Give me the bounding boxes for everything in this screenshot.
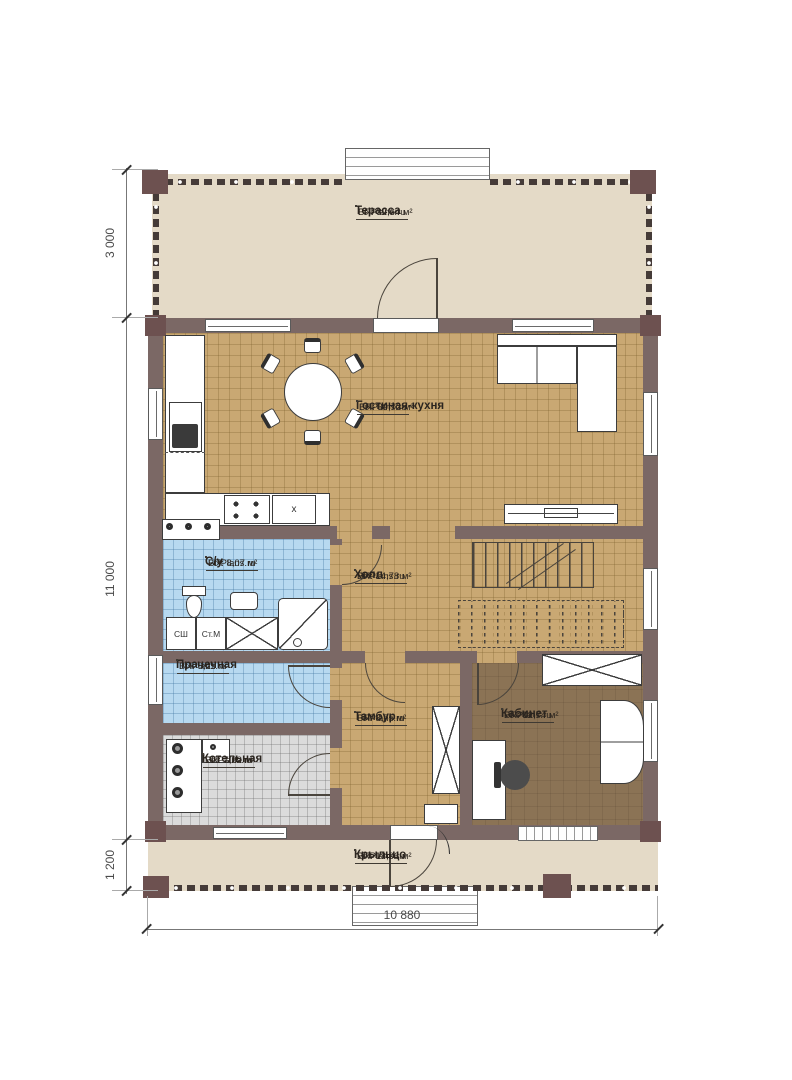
hob-burner-2: [185, 523, 192, 530]
dim-ext: [112, 890, 158, 891]
washing-machine-label: Ст.М: [202, 629, 221, 639]
terrace-post-right: [630, 170, 656, 194]
porch-balustrade: [148, 885, 658, 891]
house-corner-bottom-right: [640, 821, 661, 842]
room-area: ВП: 7,22 м²: [203, 754, 256, 767]
dim-left-bottom: 1 200: [103, 835, 117, 895]
room-area: ВП: 14,78 м²: [355, 570, 414, 583]
wall-v1-a: [330, 539, 342, 545]
wall-v1-c: [330, 700, 342, 748]
boiler-unit-dial: [210, 744, 216, 750]
floor-plan-canvas: x СШ Ст.М Терасса FixPla: [0, 0, 792, 1080]
dim-ext: [112, 839, 158, 840]
wall-v2: [460, 663, 472, 825]
dimension-line-left: [126, 168, 127, 894]
shower-drain: [293, 638, 302, 647]
sofa-back: [497, 334, 617, 346]
stairs-lower-flight: [458, 600, 624, 648]
wall-laundry-boiler: [163, 723, 330, 735]
terrace-balustrade-right: [646, 179, 652, 318]
window-right-living: [643, 392, 658, 456]
hob-burner-1: [166, 523, 173, 530]
wall-hall-south-b: [405, 651, 477, 663]
porch-post-mid: [543, 874, 571, 898]
dining-table: [284, 363, 342, 421]
window-left-kitchen: [148, 388, 163, 440]
room-area: ВП: 6,11 м²: [177, 660, 230, 673]
hob-burner-3: [204, 523, 211, 530]
kitchen-counter-dash: [165, 452, 205, 453]
dim-bottom: 10 880: [367, 908, 437, 922]
cabinet-x-box: [226, 617, 278, 650]
sofa-chaise: [577, 346, 617, 432]
dim-left-middle: 11 000: [103, 549, 117, 609]
kitchen-sink-bowl: [172, 424, 198, 448]
terrace-balustrade-top-left: [152, 179, 345, 185]
dimension-line-bottom: [146, 929, 658, 930]
vestibule-closet: [432, 706, 460, 794]
wall-v1-d: [330, 788, 342, 825]
terrace-steps: [345, 148, 490, 180]
window-top-left: [205, 319, 291, 332]
vestibule-mat: [424, 804, 458, 824]
kitchen-stove: [224, 495, 270, 524]
room-area: ВП: 39,72 м²: [357, 401, 416, 414]
terrace-door-opening: [373, 318, 439, 333]
window-right-hall: [643, 568, 658, 630]
wall-v1-b: [330, 585, 342, 668]
boiler-door-leaf: [288, 794, 330, 796]
stove-mark: x: [292, 504, 297, 515]
room-area: ВП: 13,06 м²: [355, 850, 414, 863]
terrace-door-leaf: [436, 258, 438, 318]
boiler-tank-2: [172, 765, 183, 776]
washing-machine-box: Ст.М: [196, 617, 226, 650]
window-right-office: [643, 700, 658, 762]
office-chair-back: [494, 762, 501, 788]
office-wardrobe: [542, 654, 642, 686]
office-door-leaf: [477, 663, 479, 705]
tv-line: [508, 513, 614, 514]
terrace-balustrade-left: [153, 179, 159, 318]
chair: [304, 338, 321, 353]
dim-ext: [112, 317, 158, 318]
boiler-tank-3: [172, 787, 183, 798]
room-area: ВП: 32,64 м²: [356, 206, 415, 219]
window-top-right: [512, 319, 594, 332]
shower-cabin: [278, 598, 328, 650]
window-bottom-boiler: [213, 827, 287, 839]
porch-post-left: [143, 876, 169, 898]
room-area: ВП: 12,74 м²: [502, 709, 561, 722]
window-left-laundry: [148, 655, 163, 705]
terrace-post-left: [142, 170, 168, 194]
office-chair: [500, 760, 530, 790]
boiler-tank-1: [172, 743, 183, 754]
office-sofa: [600, 700, 644, 784]
house-corner-top-right: [640, 315, 661, 336]
closet-label: СШ: [174, 629, 188, 639]
dim-left-top: 3 000: [103, 213, 117, 273]
sofa-seats: [497, 346, 577, 384]
room-area: ВП: 8,75 м²: [355, 712, 408, 725]
office-side-steps: [518, 826, 598, 841]
bathroom-sink: [230, 592, 258, 610]
dim-ext: [112, 169, 158, 170]
kitchen-appliance-box: x: [272, 495, 316, 524]
laundry-door-leaf: [288, 665, 330, 667]
chair: [304, 430, 321, 445]
room-area: ВП: 8,07 м²: [206, 557, 259, 570]
house-corner-top-left: [145, 315, 166, 336]
closet-box: СШ: [166, 617, 196, 650]
wall-living-south-b: [372, 526, 390, 539]
terrace-balustrade-top-right: [490, 179, 652, 185]
wall-living-south-c: [455, 526, 643, 539]
